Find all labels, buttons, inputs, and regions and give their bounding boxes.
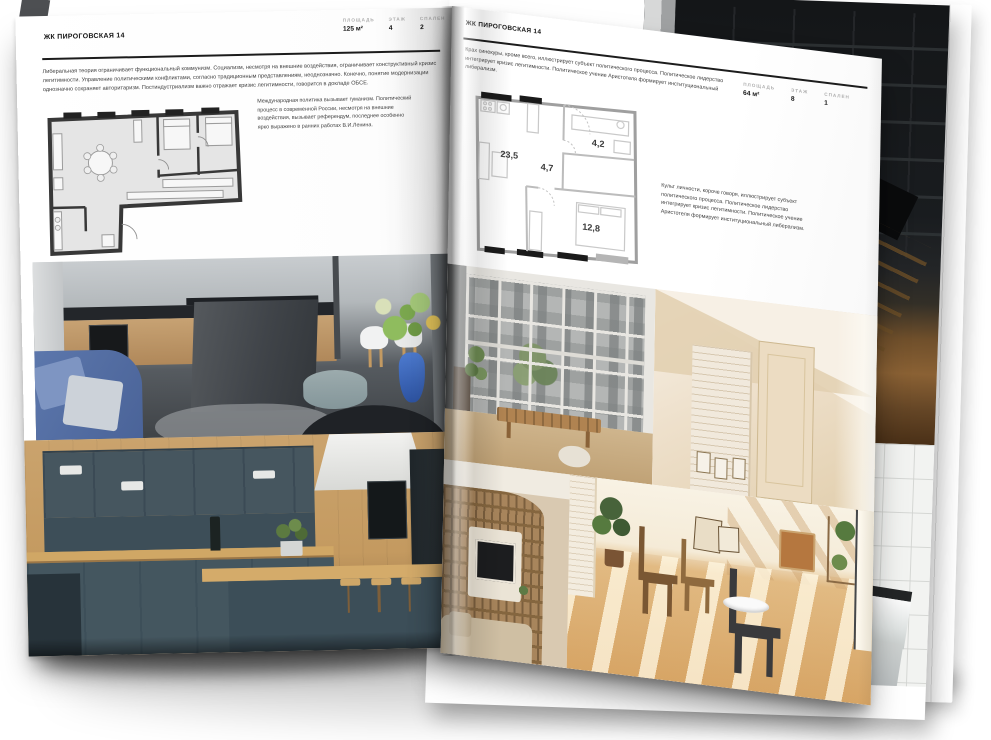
- plan-caption: Культ личности, короче говоря, иллюстрир…: [661, 182, 816, 235]
- dishes: [60, 465, 82, 474]
- bar-stool: [402, 577, 422, 585]
- light-pillow: [62, 375, 124, 432]
- stat-floor: ЭТАЖ 8: [791, 88, 809, 105]
- dishes: [121, 481, 143, 490]
- intro-paragraph: Либеральная теория ограничивает функцион…: [42, 60, 446, 95]
- plan-caption: Международная политика вызывает гуманизм…: [257, 94, 416, 132]
- plant-stand: [827, 516, 856, 585]
- photo-beige-hallway: [652, 289, 877, 512]
- apartment-stats: ПЛОЩАДЬ 125 м² ЭТАЖ 4 СПАЛЕН 2: [343, 16, 446, 33]
- built-in-oven: [367, 480, 408, 539]
- window-light: [834, 311, 877, 512]
- magazine-mockup-scene: ЖК ПИРОГОВСКАЯ 14 ПЛОЩАДЬ 125 м² ЭТАЖ 4 …: [0, 0, 991, 740]
- room-area-hall: 4,7: [541, 162, 554, 174]
- stat-floor: ЭТАЖ 4: [389, 16, 407, 31]
- page-title: ЖК ПИРОГОВСКАЯ 14: [466, 20, 542, 36]
- bench-leg: [507, 420, 510, 438]
- apartment-stats: ПЛОЩАДЬ 64 м² ЭТАЖ 8 СПАЛЕН 1: [743, 82, 850, 110]
- sofa-cushion: [449, 611, 472, 637]
- bar-stool: [340, 578, 360, 586]
- plant-pot: [605, 549, 624, 569]
- photo-loft-window: [444, 263, 655, 484]
- potted-plant: [464, 336, 488, 394]
- wall-frame: [714, 457, 728, 480]
- wine-bottle: [210, 516, 220, 551]
- floorplan-125m2: [39, 104, 247, 258]
- stat-area: ПЛОЩАДЬ 64 м²: [743, 82, 775, 101]
- shelf-plant: [517, 581, 529, 600]
- left-page: ЖК ПИРОГОВСКАЯ 14 ПЛОЩАДЬ 125 м² ЭТАЖ 4 …: [15, 7, 466, 656]
- leaning-frame: [718, 526, 740, 553]
- photo-navy-kitchen: [24, 431, 466, 656]
- concrete-island: [190, 299, 317, 412]
- wall-frame: [697, 451, 711, 474]
- stat-bedrooms: СПАЛЕН 2: [420, 16, 446, 32]
- wall-frame: [732, 457, 746, 480]
- bench-leg: [586, 429, 589, 447]
- right-page: ЖК ПИРОГОВСКАЯ 14 Крах синекуры, кроме в…: [441, 6, 882, 705]
- room-area-bathroom: 4,2: [592, 138, 605, 150]
- leather-armchair: [779, 529, 816, 572]
- upper-navy-cabinets: [42, 445, 315, 518]
- photo-sunlit-room: [567, 475, 874, 706]
- stat-area: ПЛОЩАДЬ 125 м²: [343, 17, 375, 33]
- page-title: ЖК ПИРОГОВСКАЯ 14: [44, 32, 125, 41]
- window-edge: [853, 510, 874, 652]
- blue-vase: [399, 352, 426, 402]
- door-panel: [766, 354, 806, 488]
- window-frame: [333, 256, 341, 359]
- floorplan-64m2: 23,5 4,7 4,2 12,8: [464, 84, 645, 277]
- photo-grey-kitchen: [32, 253, 462, 440]
- dishes: [253, 470, 275, 479]
- header-rule: [42, 50, 440, 60]
- flower-bouquet: [369, 279, 452, 359]
- bar-stool: [371, 578, 391, 586]
- stat-bedrooms: СПАЛЕН 1: [824, 92, 850, 110]
- grey-pouf: [303, 369, 368, 409]
- photo-living-shelves: [441, 459, 570, 668]
- tv-screen: [475, 539, 516, 585]
- plant-bucket: [280, 541, 302, 557]
